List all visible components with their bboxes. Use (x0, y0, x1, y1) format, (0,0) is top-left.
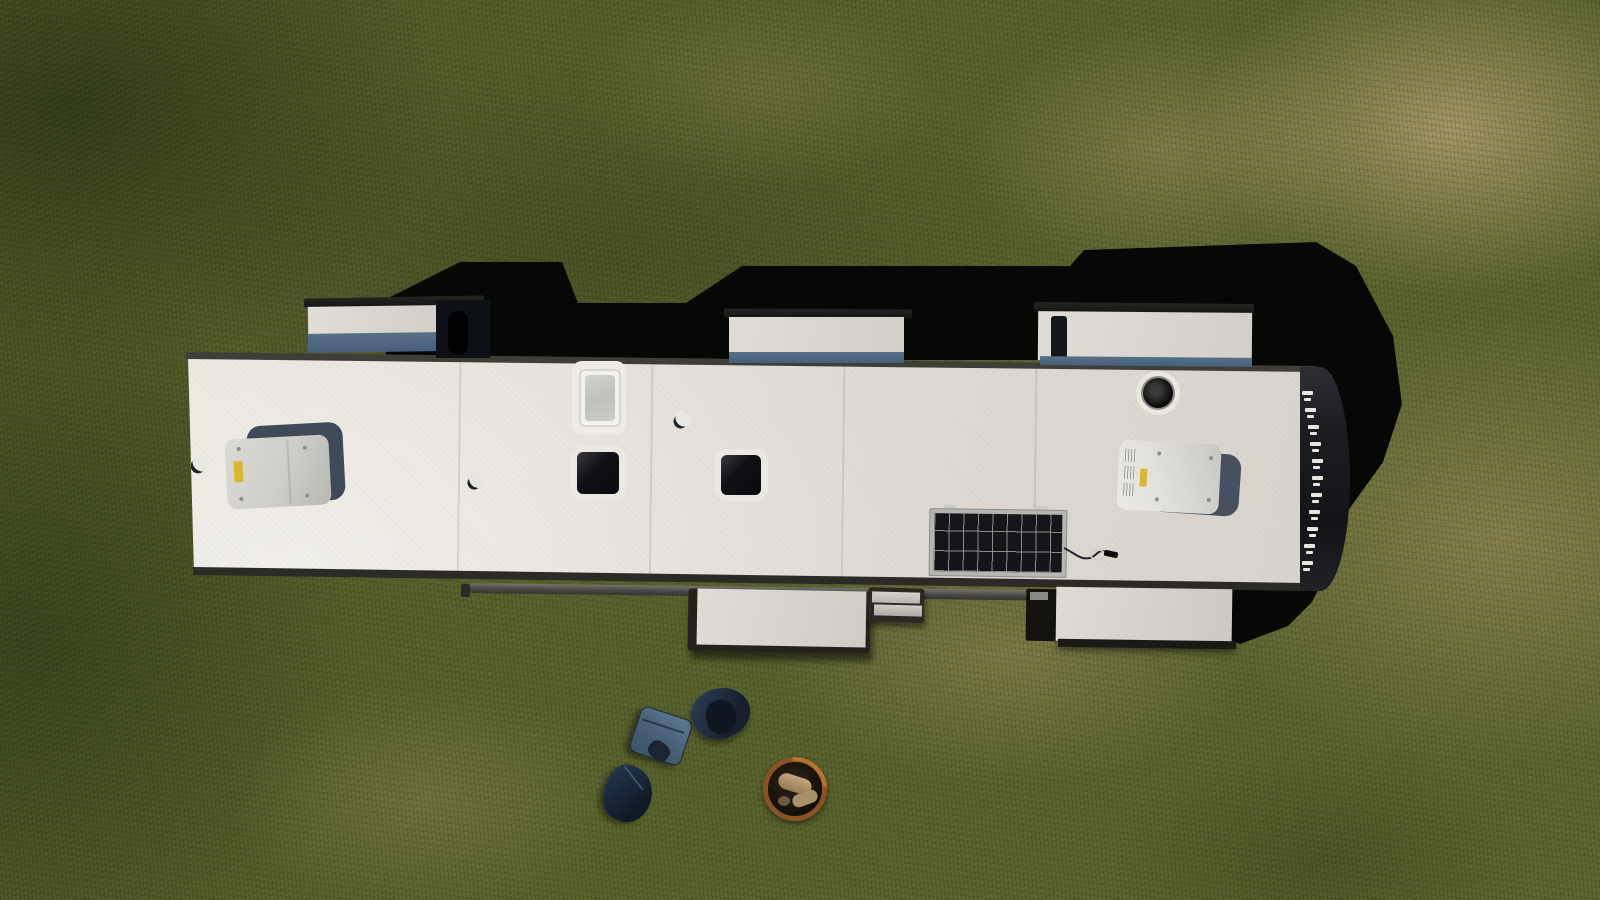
plumbing-vent-2 (466, 473, 484, 491)
slide-out-bottom-right (1056, 587, 1233, 643)
entry-steps (872, 591, 920, 603)
slide-out-bottom-right-step (1030, 592, 1048, 600)
aerial-photo-scene (0, 0, 1600, 900)
slide-out-top-middle (729, 317, 904, 354)
slide-out-bottom-middle (697, 589, 867, 648)
slide-out-top-left-slot (448, 311, 468, 355)
fire-pit-stone (778, 796, 790, 806)
solar-panel (929, 508, 1068, 578)
slide-out-top-right (1038, 311, 1252, 362)
slide-out-top-left (308, 305, 438, 335)
slide-out-top-left-fascia (308, 332, 438, 353)
slide-out-top-middle-fascia (729, 352, 904, 363)
plumbing-vent-1 (189, 455, 209, 475)
slide-out-top-right-recess (1051, 316, 1067, 362)
plumbing-vent-3 (672, 411, 691, 430)
skylight (579, 369, 621, 427)
ac-unit-front (224, 434, 332, 509)
fire-pit-ring (763, 757, 827, 821)
roof-vent-left (577, 452, 619, 494)
refrigerator-vent-hole (1136, 371, 1180, 415)
entry-step-lower (874, 604, 922, 616)
solar-cable (1062, 538, 1126, 570)
roof-vent-right (721, 455, 761, 495)
ac-unit-rear (1116, 439, 1222, 514)
awning-bracket (461, 584, 470, 597)
slide-out-top-right-fascia (1040, 356, 1252, 367)
